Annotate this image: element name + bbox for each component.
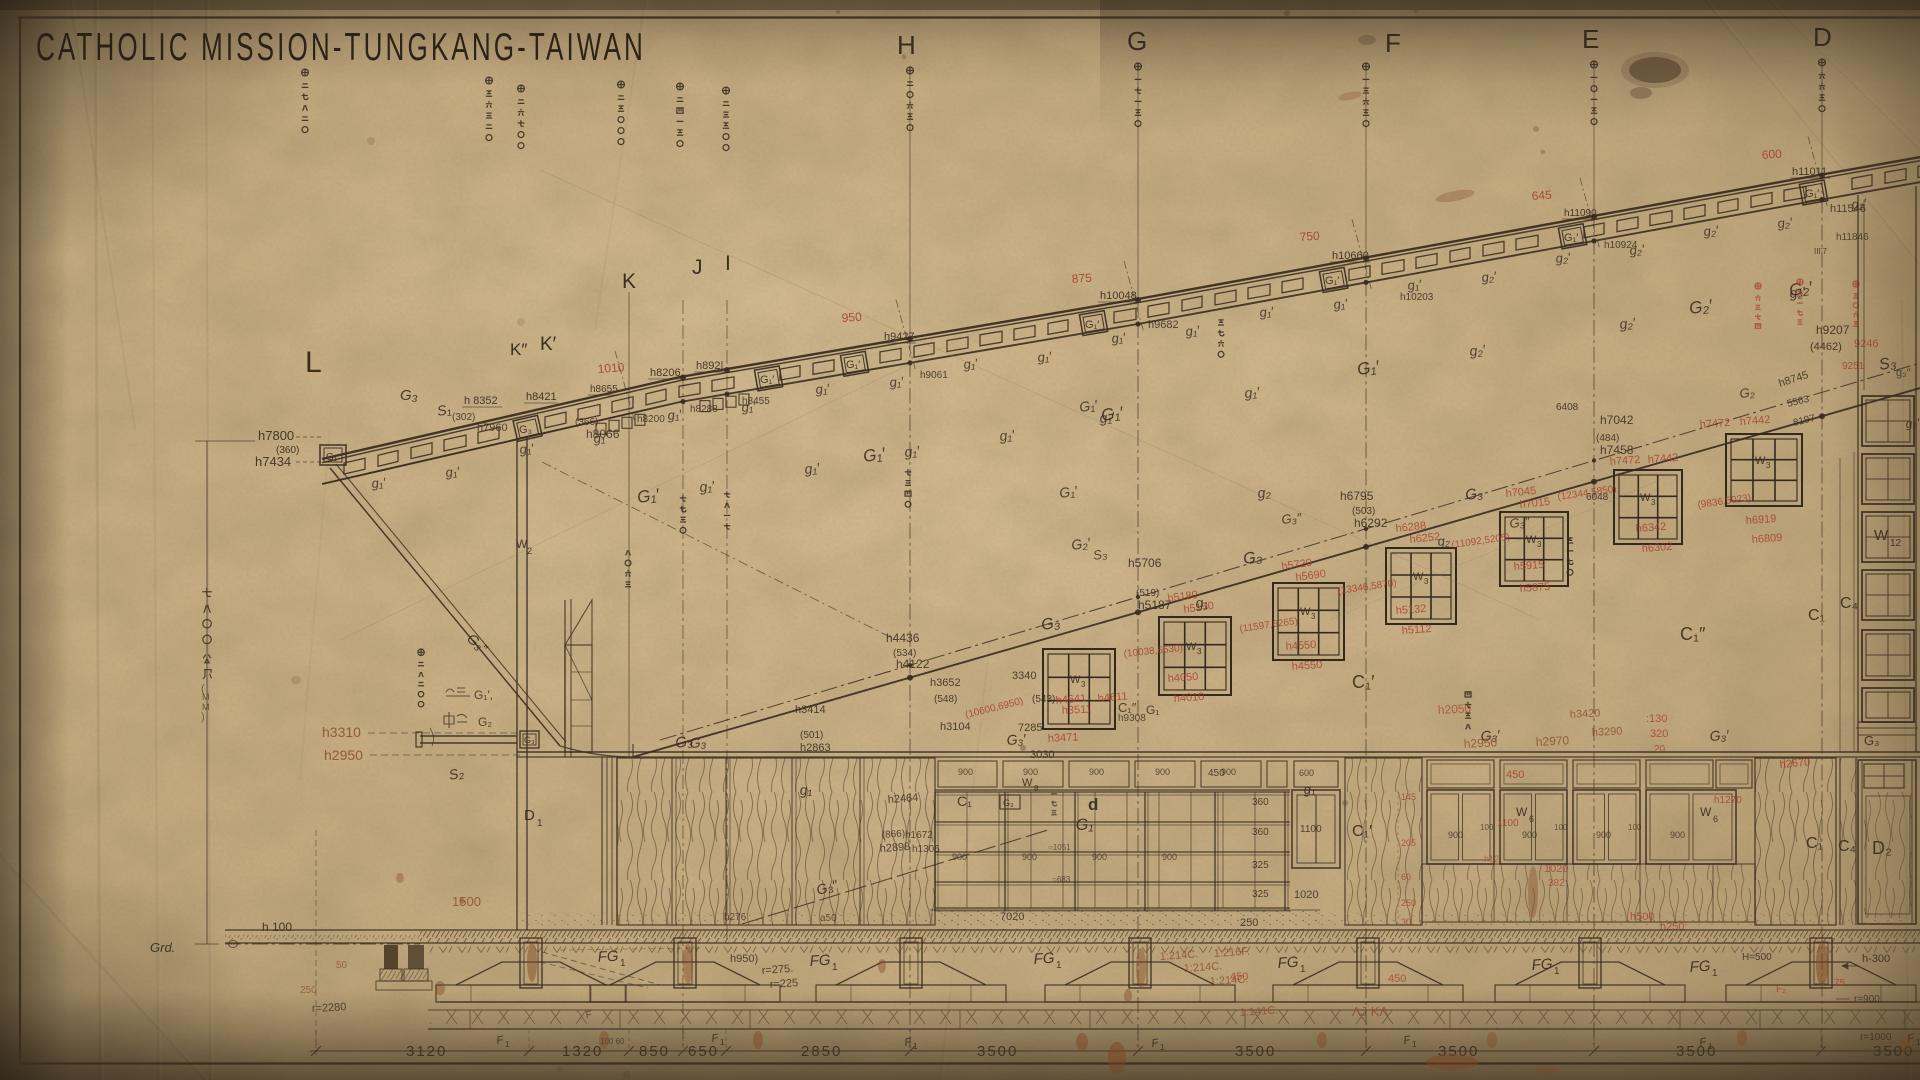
svg-text:FG: FG <box>1531 956 1553 974</box>
svg-text:h10203: h10203 <box>1400 292 1434 303</box>
svg-text:FG: FG <box>597 948 619 966</box>
svg-text:h9682: h9682 <box>1148 319 1179 331</box>
svg-text:g₃″: g₃″ <box>1905 415 1920 431</box>
svg-text:C₁′: C₁′ <box>1352 672 1375 692</box>
svg-text:J: J <box>692 256 703 279</box>
svg-text:H=500: H=500 <box>1742 952 1772 963</box>
svg-text:900: 900 <box>1089 767 1104 777</box>
svg-text:C₄: C₄ <box>1840 595 1858 612</box>
svg-text:h7472: h7472 <box>1699 417 1730 431</box>
svg-text:g₁′: g₁′ <box>889 374 905 390</box>
svg-text:3: 3 <box>1081 680 1086 689</box>
svg-text:h3420: h3420 <box>1570 707 1601 721</box>
svg-text:r=900: r=900 <box>1854 994 1880 1005</box>
svg-text:Grd.: Grd. <box>150 940 175 955</box>
svg-text:g₂′: g₂′ <box>1619 314 1638 332</box>
svg-text:1020: 1020 <box>1544 863 1568 875</box>
svg-text:h8421: h8421 <box>526 391 557 403</box>
svg-text:1: 1 <box>913 1042 918 1051</box>
svg-text:(501): (501) <box>800 730 823 741</box>
svg-text:G₁: G₁ <box>326 452 338 463</box>
svg-text:g₂′: g₂′ <box>1703 222 1720 239</box>
svg-text:G₃: G₃ <box>1003 798 1014 808</box>
svg-text:320: 320 <box>1650 728 1668 740</box>
svg-text:2850: 2850 <box>801 1043 842 1060</box>
svg-text:h12₁: h12₁ <box>1484 854 1502 864</box>
svg-text:h3652: h3652 <box>930 677 961 689</box>
svg-text:(4462): (4462) <box>1810 341 1842 353</box>
svg-text:1: 1 <box>1056 960 1062 971</box>
svg-text:h7442: h7442 <box>1647 452 1678 466</box>
svg-text:h6919: h6919 <box>1745 513 1776 527</box>
svg-text:450: 450 <box>1506 769 1524 781</box>
svg-text:d: d <box>1088 795 1098 814</box>
svg-text:1320: 1320 <box>562 1043 603 1060</box>
svg-text:645: 645 <box>1531 188 1552 203</box>
svg-text:h 8352: h 8352 <box>464 395 498 407</box>
svg-text:r=225: r=225 <box>769 977 798 991</box>
svg-text:D: D <box>524 807 535 824</box>
svg-text:9251: 9251 <box>1842 361 1865 372</box>
svg-text:W: W <box>1413 571 1424 583</box>
svg-text:g₁′: g₁′ <box>445 464 461 480</box>
svg-text:G₃′: G₃′ <box>1709 727 1731 744</box>
svg-text:1: 1 <box>1412 1040 1417 1049</box>
svg-text:G₁: G₁ <box>1146 703 1159 717</box>
svg-text:h4050: h4050 <box>1167 671 1198 685</box>
svg-text:1500: 1500 <box>452 894 481 909</box>
svg-text:○683: ○683 <box>1052 875 1071 884</box>
svg-text:h9061: h9061 <box>920 370 948 381</box>
svg-text:h5915: h5915 <box>1513 559 1544 573</box>
svg-text:205: 205 <box>1401 838 1416 848</box>
svg-text:h 100: h 100 <box>262 920 292 934</box>
svg-text:h9207: h9207 <box>1816 323 1850 337</box>
svg-text:G₃″: G₃″ <box>1509 514 1531 531</box>
svg-text:h-300: h-300 <box>1862 953 1890 965</box>
svg-text:h2950: h2950 <box>324 747 363 763</box>
svg-text:G₁′: G₁′ <box>760 374 774 386</box>
svg-text:C₄: C₄ <box>1838 838 1856 855</box>
svg-text:h7434: h7434 <box>255 454 291 469</box>
svg-text:20: 20 <box>1654 744 1666 755</box>
svg-text:G₃: G₃ <box>1040 615 1061 634</box>
svg-text:3: 3 <box>1197 647 1202 656</box>
svg-text:900: 900 <box>952 852 967 862</box>
svg-text:G₂′: G₂′ <box>1070 534 1092 553</box>
svg-text:g₁′: g₁′ <box>371 475 387 491</box>
svg-text:1010: 1010 <box>597 360 625 376</box>
svg-text:E: E <box>1582 24 1599 54</box>
svg-text:1: 1 <box>1712 968 1718 979</box>
svg-text:C₁′: C₁′ <box>1352 823 1372 840</box>
svg-text:h2464: h2464 <box>887 792 918 806</box>
svg-text:900: 900 <box>1596 830 1611 840</box>
svg-text:h11090: h11090 <box>1564 208 1597 219</box>
svg-text:D: D <box>1813 22 1832 52</box>
svg-text:F₂: F₂ <box>1776 984 1786 995</box>
svg-text:h4122: h4122 <box>896 657 930 671</box>
svg-text:3030: 3030 <box>1030 749 1054 761</box>
svg-text:1: 1 <box>1300 964 1306 975</box>
svg-text:h10660: h10660 <box>1332 250 1369 262</box>
svg-text:g₁′: g₁′ <box>1185 323 1201 339</box>
svg-text:(866): (866) <box>881 828 905 841</box>
svg-text:250: 250 <box>1401 898 1416 908</box>
svg-text:3: 3 <box>1537 540 1542 549</box>
svg-text:900: 900 <box>1670 830 1685 840</box>
svg-text:h3104: h3104 <box>940 721 971 733</box>
svg-text:h6809: h6809 <box>1751 532 1782 546</box>
svg-text:1100: 1100 <box>1497 818 1519 829</box>
svg-text:h5187: h5187 <box>1138 598 1172 612</box>
svg-text:H: H <box>897 30 916 60</box>
svg-text:h7042: h7042 <box>1600 413 1634 427</box>
svg-text:G₂: G₂ <box>1739 384 1756 400</box>
svg-text:G₁′: G₁′ <box>1100 403 1125 425</box>
svg-text:C₁: C₁ <box>1806 835 1823 852</box>
svg-text:g₁′: g₁′ <box>1037 349 1053 365</box>
svg-text:3120: 3120 <box>406 1043 447 1060</box>
svg-text:h7960: h7960 <box>477 422 508 434</box>
svg-text:3340: 3340 <box>1012 670 1036 682</box>
svg-text:h2050: h2050 <box>1437 701 1471 717</box>
svg-text:h9427: h9427 <box>884 331 915 343</box>
svg-text::130: :130 <box>1646 713 1667 725</box>
svg-text:1: 1 <box>720 1038 725 1047</box>
svg-text:G₁′: G₁′ <box>1564 232 1578 244</box>
svg-text:900: 900 <box>1522 830 1537 840</box>
svg-text:r=275.: r=275. <box>761 963 793 977</box>
svg-text:900: 900 <box>1155 767 1170 777</box>
svg-text:(302): (302) <box>452 412 475 423</box>
svg-text:3: 3 <box>1311 612 1316 621</box>
svg-text:h8200: h8200 <box>637 414 665 425</box>
svg-text:1: 1 <box>505 1040 510 1049</box>
svg-text:h4436: h4436 <box>886 631 920 645</box>
svg-text:h4550: h4550 <box>1285 639 1316 653</box>
svg-text:250: 250 <box>1240 917 1258 929</box>
svg-text:G₂: G₂ <box>478 715 492 729</box>
svg-text:g₃″: g₃″ <box>1896 367 1911 379</box>
svg-text:W: W <box>1874 527 1889 544</box>
svg-text:g₁′: g₁′ <box>593 430 609 446</box>
svg-text:K: K <box>622 270 636 293</box>
svg-text:h8288: h8288 <box>690 404 718 415</box>
svg-text:S₃: S₃ <box>1878 354 1898 374</box>
svg-text:C₁″: C₁″ <box>1680 624 1706 644</box>
svg-text:h2898: h2898 <box>879 841 910 855</box>
svg-text:g₂′: g₂′ <box>1777 214 1794 231</box>
svg-text:G₃″: G₃″ <box>1281 510 1303 527</box>
svg-text:325: 325 <box>1252 889 1269 900</box>
svg-text:G₃: G₃ <box>1464 485 1484 504</box>
svg-text:h4550: h4550 <box>1291 659 1322 673</box>
svg-text:): ) <box>201 711 205 723</box>
svg-text:250: 250 <box>300 985 317 996</box>
svg-text:FG: FG <box>1277 954 1299 972</box>
svg-text:h2970: h2970 <box>1535 733 1569 749</box>
svg-text:FG: FG <box>809 952 831 970</box>
svg-text:g₂′: g₂′ <box>1851 195 1868 212</box>
svg-text:G₃: G₃ <box>689 734 707 751</box>
svg-text:145: 145 <box>1401 792 1416 802</box>
svg-text:950: 950 <box>841 310 862 325</box>
svg-text:h6292: h6292 <box>1354 516 1388 530</box>
svg-text:h3290: h3290 <box>1592 725 1623 739</box>
svg-text:h1270: h1270 <box>1714 795 1742 806</box>
svg-text:W: W <box>1640 492 1651 504</box>
svg-text:h5875: h5875 <box>1519 581 1550 595</box>
svg-text:G₃: G₃ <box>1864 733 1879 748</box>
svg-text:1: 1 <box>832 962 838 973</box>
svg-text:60: 60 <box>1401 872 1411 882</box>
svg-text:h10048: h10048 <box>1100 290 1137 302</box>
svg-text:G₁′: G₁′ <box>1085 319 1099 331</box>
svg-text:L: L <box>305 346 322 379</box>
svg-text:g₁′: g₁′ <box>815 381 831 397</box>
svg-text:W: W <box>1070 674 1081 686</box>
svg-text:III’7: III’7 <box>1814 247 1827 256</box>
svg-text:g₁′: g₁′ <box>667 407 683 423</box>
svg-text:h3511: h3511 <box>1062 703 1092 717</box>
svg-text:g₁′: g₁′ <box>1407 277 1423 293</box>
svg-text:G₃: G₃ <box>519 424 532 436</box>
svg-text:g₁′: g₁′ <box>1111 330 1127 346</box>
svg-text:W: W <box>1516 805 1528 819</box>
svg-text:g₁: g₁ <box>799 781 813 798</box>
svg-text:h5132: h5132 <box>1395 603 1426 617</box>
svg-text:50: 50 <box>336 960 348 971</box>
svg-text:750: 750 <box>1299 229 1320 244</box>
svg-text:g₂′: g₂′ <box>1629 241 1646 258</box>
svg-text:h8206: h8206 <box>650 367 681 379</box>
svg-text:450: 450 <box>1388 973 1406 985</box>
svg-text:g₂′: g₂′ <box>1481 268 1498 285</box>
svg-text:382: 382 <box>1548 878 1565 889</box>
svg-text:g₂′: g₂′ <box>1469 341 1488 359</box>
svg-text:h6342: h6342 <box>1635 521 1666 535</box>
svg-text:h5706: h5706 <box>1128 556 1162 570</box>
svg-text:h7442: h7442 <box>1739 414 1770 428</box>
svg-text:W: W <box>1022 777 1033 789</box>
svg-text:100: 100 <box>1480 823 1494 832</box>
svg-text:W: W <box>1186 641 1197 653</box>
svg-text:900: 900 <box>958 767 973 777</box>
svg-text:1: 1 <box>1554 966 1560 977</box>
svg-text:360: 360 <box>1252 827 1269 838</box>
svg-text:h4010: h4010 <box>1173 691 1204 705</box>
svg-text:h6302: h6302 <box>1641 541 1672 555</box>
svg-text:h5112: h5112 <box>1401 623 1432 637</box>
svg-text:h892|: h892| <box>696 360 723 372</box>
svg-text:900: 900 <box>1022 852 1037 862</box>
svg-text:100: 100 <box>1628 823 1642 832</box>
svg-text:h11846: h11846 <box>1836 232 1869 243</box>
svg-text:G₁′: G₁′ <box>1805 188 1819 200</box>
svg-text:h11011: h11011 <box>1792 166 1827 178</box>
svg-text:600: 600 <box>1761 147 1782 162</box>
svg-text:1020: 1020 <box>1294 889 1318 901</box>
svg-text:h1672: h1672 <box>905 830 933 841</box>
svg-text:h950): h950) <box>730 953 758 965</box>
svg-text:h3310: h3310 <box>322 724 361 740</box>
svg-text:h7800: h7800 <box>258 428 294 443</box>
svg-text:g₁: g₁ <box>1195 594 1209 611</box>
svg-text:r=2280: r=2280 <box>312 1001 347 1015</box>
svg-text:g₁′: g₁′ <box>1259 304 1275 320</box>
svg-text:875: 875 <box>1071 271 1092 286</box>
svg-text:h6795: h6795 <box>1340 489 1374 503</box>
svg-text:G₃: G₃ <box>524 735 535 745</box>
svg-text:g₁′: g₁′ <box>1333 296 1349 312</box>
svg-text:h3414: h3414 <box>795 704 826 716</box>
svg-text:1: 1 <box>1916 1038 1920 1047</box>
svg-text:3: 3 <box>1651 498 1656 507</box>
svg-text:6408: 6408 <box>1556 402 1579 413</box>
svg-text:h7472: h7472 <box>1609 454 1640 468</box>
svg-text:900: 900 <box>1162 852 1177 862</box>
svg-text:W: W <box>1300 606 1311 618</box>
svg-text:G₁′: G₁′ <box>1356 357 1381 379</box>
svg-text:g₂′: g₂′ <box>1555 249 1572 266</box>
svg-text:CATHOLIC MISSION-TUNGKANG-TAIW: CATHOLIC MISSION-TUNGKANG-TAIWAN <box>36 25 646 69</box>
svg-text:G₃: G₃ <box>1242 549 1263 568</box>
svg-text:450: 450 <box>1208 768 1225 779</box>
svg-text:3500: 3500 <box>1235 1043 1276 1060</box>
svg-text:G: G <box>1127 26 1147 56</box>
svg-text:C₁: C₁ <box>957 793 972 809</box>
svg-text:6: 6 <box>1529 814 1534 824</box>
svg-text:FG: FG <box>1689 958 1711 976</box>
svg-text:1: 1 <box>620 958 626 969</box>
svg-text:h500: h500 <box>1630 911 1654 923</box>
svg-text:G₁′: G₁′ <box>846 359 860 371</box>
svg-text:(548): (548) <box>934 694 957 705</box>
svg-text:W: W <box>1526 534 1537 546</box>
svg-text:360: 360 <box>1252 797 1269 808</box>
svg-text:900: 900 <box>1023 767 1038 777</box>
svg-text:3500: 3500 <box>977 1043 1018 1060</box>
svg-text:G₃: G₃ <box>400 387 418 404</box>
svg-text:K″: K″ <box>510 340 527 359</box>
svg-text:h1306: h1306 <box>912 844 940 855</box>
svg-text:C₁: C₁ <box>1808 607 1825 624</box>
svg-text:K′: K′ <box>540 334 557 355</box>
svg-text:G₁′: G₁′ <box>862 444 887 466</box>
svg-text:1: 1 <box>537 818 543 829</box>
svg-text:M: M <box>202 692 210 702</box>
svg-text:○1051: ○1051 <box>1048 843 1071 852</box>
svg-text:650: 650 <box>688 1043 719 1060</box>
svg-text:12: 12 <box>1890 538 1902 549</box>
svg-text:900: 900 <box>1092 852 1107 862</box>
svg-text:r=1000: r=1000 <box>1860 1032 1892 1043</box>
svg-text:S₃: S₃ <box>1092 546 1108 563</box>
svg-text:G₁′: G₁′ <box>636 485 661 507</box>
svg-text:900: 900 <box>1448 830 1463 840</box>
svg-text:75: 75 <box>1834 978 1846 989</box>
svg-text:C₁″: C₁″ <box>1118 700 1137 715</box>
svg-text:600: 600 <box>1299 768 1314 778</box>
svg-text:g₂: g₂ <box>1437 533 1451 549</box>
svg-text:F: F <box>585 1009 592 1021</box>
svg-text:a50: a50 <box>820 913 837 924</box>
svg-text:325: 325 <box>1252 860 1269 871</box>
svg-text:g₁′: g₁′ <box>741 399 757 415</box>
svg-text:G₁′,: G₁′, <box>474 688 493 702</box>
svg-text:G₁′: G₁′ <box>1325 275 1339 287</box>
svg-text:h8655: h8655 <box>590 384 618 395</box>
svg-text:3500: 3500 <box>1676 1043 1717 1060</box>
svg-text:W: W <box>1700 805 1712 819</box>
svg-text:G₂′: G₂′ <box>1688 296 1714 318</box>
svg-text:3: 3 <box>1766 461 1771 470</box>
svg-text:6: 6 <box>1713 814 1718 824</box>
svg-text:FG: FG <box>1033 950 1055 968</box>
svg-text:ΛJ KΛ: ΛJ KΛ <box>1352 1004 1388 1019</box>
svg-text:100: 100 <box>1554 823 1568 832</box>
svg-text:F: F <box>1385 28 1401 58</box>
svg-text:h2950: h2950 <box>1463 735 1497 751</box>
svg-text:1100: 1100 <box>1300 824 1322 835</box>
svg-text:850: 850 <box>639 1043 670 1060</box>
svg-text:h3471: h3471 <box>1048 731 1079 745</box>
svg-text:450: 450 <box>1230 971 1248 983</box>
svg-text:W: W <box>1755 455 1766 467</box>
svg-text:1:216F.: 1:216F. <box>1213 946 1250 960</box>
